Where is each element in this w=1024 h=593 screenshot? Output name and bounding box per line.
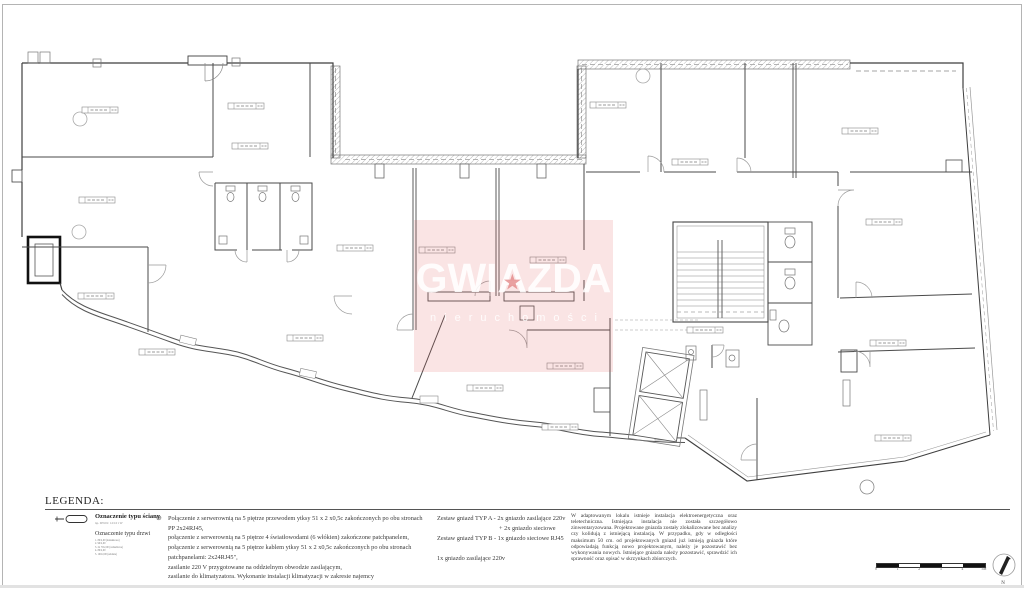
room-tag <box>419 247 455 253</box>
stairwell <box>673 222 768 322</box>
room-tag <box>687 327 723 333</box>
room-tag <box>875 435 911 441</box>
scale-label: 5M <box>982 567 987 571</box>
scale-bar: 012345M N <box>870 550 1024 588</box>
outer-walls <box>12 52 997 481</box>
wall-type-label: Oznaczenie typu ściany <box>95 513 160 520</box>
room-tag <box>287 335 323 341</box>
small-fixtures <box>686 346 850 420</box>
scale-label: 0 <box>875 567 877 571</box>
socket-notes: Zestaw gniazd TYP A - 2x gniazdo zasilaj… <box>437 514 577 564</box>
scale-label: 3 <box>940 567 942 571</box>
connection-note-line: połączenie z serwerownią na 5 piętrze 4 … <box>168 533 424 543</box>
scale-label: 1 <box>897 567 899 571</box>
socket-note-line <box>437 544 577 554</box>
scale-label: 2 <box>918 567 920 571</box>
legend-rule <box>45 509 1010 510</box>
door-arcs <box>148 63 872 460</box>
bottom-edge <box>0 585 1024 588</box>
room-tag <box>79 197 115 203</box>
socket-note-line: + 2x gniazdo sieciowe <box>437 524 577 534</box>
socket-note-line: Zestaw gniazd TYP A - 2x gniazdo zasilaj… <box>437 514 577 524</box>
floor-plan-drawing <box>0 0 1024 500</box>
room-tag <box>337 245 373 251</box>
floor-plan-page: GWIA★ZDA nieruchomości LEGENDA: Oznaczen… <box>0 0 1024 593</box>
room-tag <box>590 102 626 108</box>
room-tag <box>547 363 583 369</box>
window-bands <box>331 60 850 178</box>
room-tag <box>530 257 566 263</box>
socket-note-line: 1x gniazdo zasilające 220v <box>437 554 577 564</box>
room-tags <box>78 102 911 441</box>
connection-note-line: PP 2x24RJ45, <box>168 524 424 534</box>
scale-label: 4 <box>961 567 963 571</box>
connection-note-line: połączenie z serwerownią na 5 piętrze ka… <box>168 543 424 553</box>
socket-note-line: Zestaw gniazd TYP B - 1x gniazdo sieciow… <box>437 534 577 544</box>
room-tag <box>866 219 902 225</box>
connection-note-line: zasilanie do klimatyzatora. Wykonanie in… <box>168 572 424 582</box>
door-type-list: 1. 80/2,00 (łazienkowe)2. 90/2,003. 2x 7… <box>95 539 123 556</box>
connection-note-line: patchpanelami: 2x24RJ45", <box>168 553 424 563</box>
wall-type-sublabel: np. DW01: 12/10 i W <box>95 521 123 525</box>
connection-note-line: zasilanie 220 V przygotowane na oddzieln… <box>168 563 424 573</box>
room-tag <box>232 143 268 149</box>
service-shaft <box>28 237 62 290</box>
columns <box>72 69 874 494</box>
curved-facade <box>62 290 685 443</box>
room-tag <box>228 103 264 109</box>
door-type-label: Oznaczenie typu drzwi <box>95 531 150 537</box>
connection-notes: Połączenie z serwerownią na 5 piętrze pr… <box>168 514 424 582</box>
room-tag <box>542 424 578 430</box>
bathrooms-left <box>219 186 308 244</box>
connection-note-icon: ⊕ <box>156 514 162 522</box>
door-type-item: 5. 100/2,00 (szklane) <box>95 553 123 556</box>
room-tag <box>139 349 175 355</box>
room-tag <box>467 385 503 391</box>
room-tag <box>672 159 708 165</box>
bathrooms-right <box>768 222 812 345</box>
room-tag <box>78 293 114 299</box>
north-arrow: N <box>988 550 1022 588</box>
scale-bar-labels: 012345M <box>876 567 984 573</box>
room-tag <box>82 107 118 113</box>
room-tag <box>870 340 906 346</box>
wall-type-icon <box>55 514 93 524</box>
elevators <box>628 347 694 446</box>
installation-paragraph: W adaptowanym lokalu istnieje instalacja… <box>571 513 737 562</box>
room-tag <box>842 128 878 134</box>
connection-note-line: Połączenie z serwerownią na 5 piętrze pr… <box>168 514 424 524</box>
